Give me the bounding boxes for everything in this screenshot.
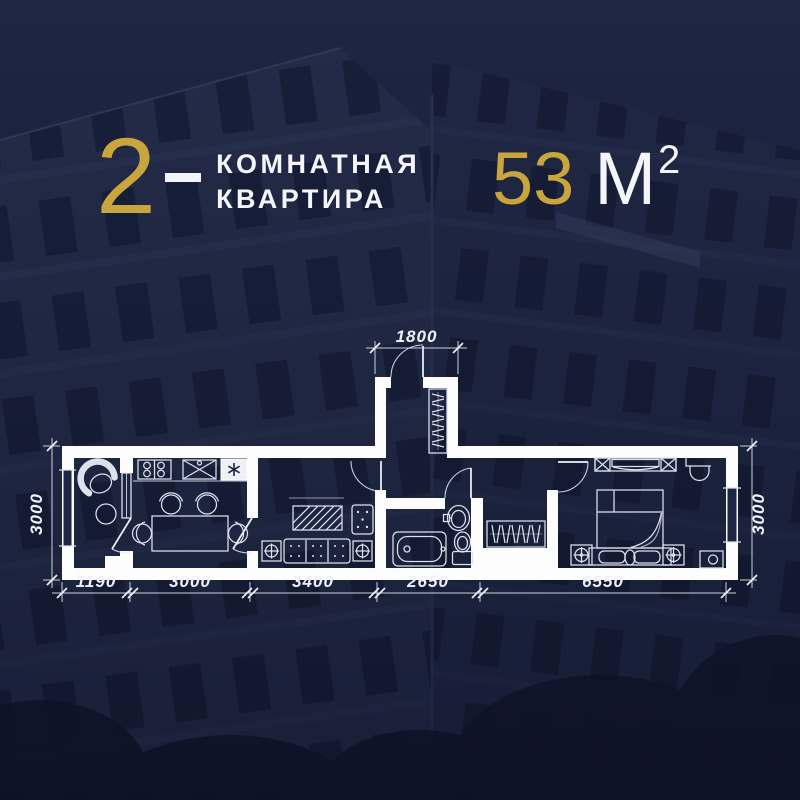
toilet — [453, 532, 473, 565]
sofa — [284, 539, 350, 563]
bathtub — [393, 532, 446, 566]
washbasin — [444, 506, 470, 531]
pouf — [352, 505, 373, 534]
dim-bottom-3: 3400 — [292, 572, 334, 591]
living-room-door — [351, 461, 381, 491]
hanger-rack — [487, 521, 545, 547]
tv-console — [285, 504, 360, 531]
dim-bottom-5: 6550 — [582, 572, 624, 591]
balcony-table — [96, 504, 116, 524]
side-table-right — [353, 541, 372, 561]
fridge-icon — [221, 459, 247, 480]
window-right — [723, 488, 741, 542]
dim-left: 3000 — [27, 493, 46, 535]
dim-top: 1800 — [396, 327, 438, 346]
bedroom-door — [558, 462, 588, 492]
dining-table — [152, 516, 228, 551]
balcony-armchair — [75, 456, 120, 500]
poster: 2 КОМНАТНАЯ КВАРТИРА 53 М 2 — [0, 0, 800, 800]
dim-bottom-1: 1190 — [76, 572, 117, 591]
floor-plan: 1800 3000 3000 1190 3000 3400 2650 6550 — [0, 0, 800, 800]
bed — [589, 490, 671, 565]
dim-right: 3000 — [749, 493, 768, 535]
sink-icon — [183, 460, 216, 479]
entrance-door — [391, 345, 423, 377]
bedroom-wardrobe — [595, 458, 676, 471]
dim-bottom-2: 3000 — [169, 572, 211, 591]
hall-wardrobe — [429, 389, 447, 453]
bathroom-door — [445, 468, 471, 498]
balcony-door — [112, 518, 131, 553]
wall-ac-unit — [686, 458, 711, 481]
stove-icon — [138, 460, 171, 479]
kitchen-glazing — [122, 473, 131, 518]
dim-bottom-4: 2650 — [406, 572, 449, 591]
bedroom-desk — [700, 551, 723, 568]
dining-chairs — [133, 493, 248, 545]
side-table-left — [262, 541, 281, 561]
kitchen-door — [233, 518, 252, 553]
